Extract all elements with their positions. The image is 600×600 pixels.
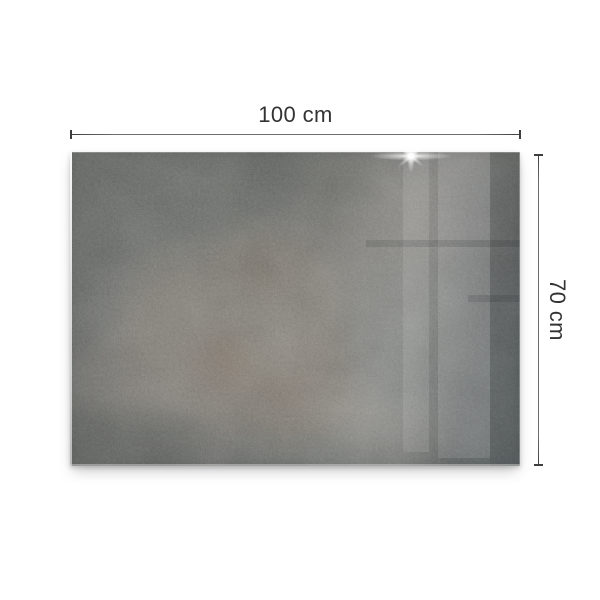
height-dimension-labelwrap: 70 cm bbox=[544, 154, 570, 466]
width-dimension-tick-right bbox=[519, 130, 521, 139]
height-dimension-tick-top bbox=[534, 154, 543, 156]
width-dimension-line bbox=[70, 134, 521, 135]
height-dimension-tick-bottom bbox=[534, 464, 543, 466]
height-dimension-line bbox=[538, 154, 539, 466]
width-dimension-tick-left bbox=[70, 130, 72, 139]
width-dimension-label: 100 cm bbox=[70, 102, 521, 128]
glass-panel bbox=[70, 152, 520, 466]
product-image-canvas: 100 cm 70 cm bbox=[0, 0, 600, 600]
height-dimension-label: 70 cm bbox=[544, 279, 570, 341]
panel-concrete-texture bbox=[70, 152, 520, 466]
